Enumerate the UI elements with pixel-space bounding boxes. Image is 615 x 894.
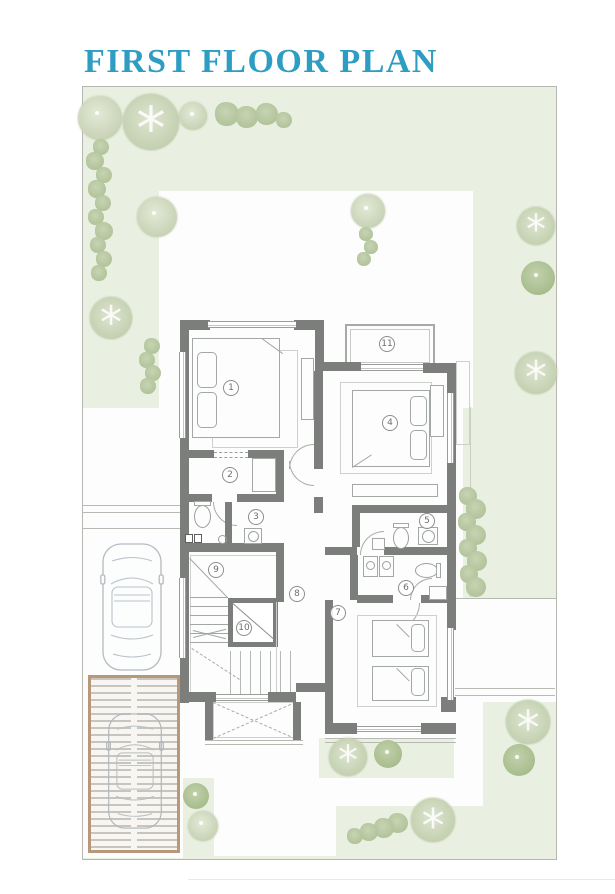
room-number: 9 (208, 562, 224, 578)
room-number: 6 (398, 580, 414, 596)
room-number: 2 (222, 467, 238, 483)
floor-plan-page: FIRST FLOOR PLAN (0, 0, 615, 894)
room-number: 10 (236, 620, 252, 636)
room-number: 1 (223, 380, 239, 396)
room-number: 8 (289, 586, 305, 602)
room-number: 7 (330, 605, 346, 621)
room-number: 4 (382, 415, 398, 431)
room-number: 5 (419, 513, 435, 529)
room-number: 11 (379, 336, 395, 352)
room-numbers: 1234567891011 (0, 0, 615, 894)
room-number: 3 (248, 509, 264, 525)
